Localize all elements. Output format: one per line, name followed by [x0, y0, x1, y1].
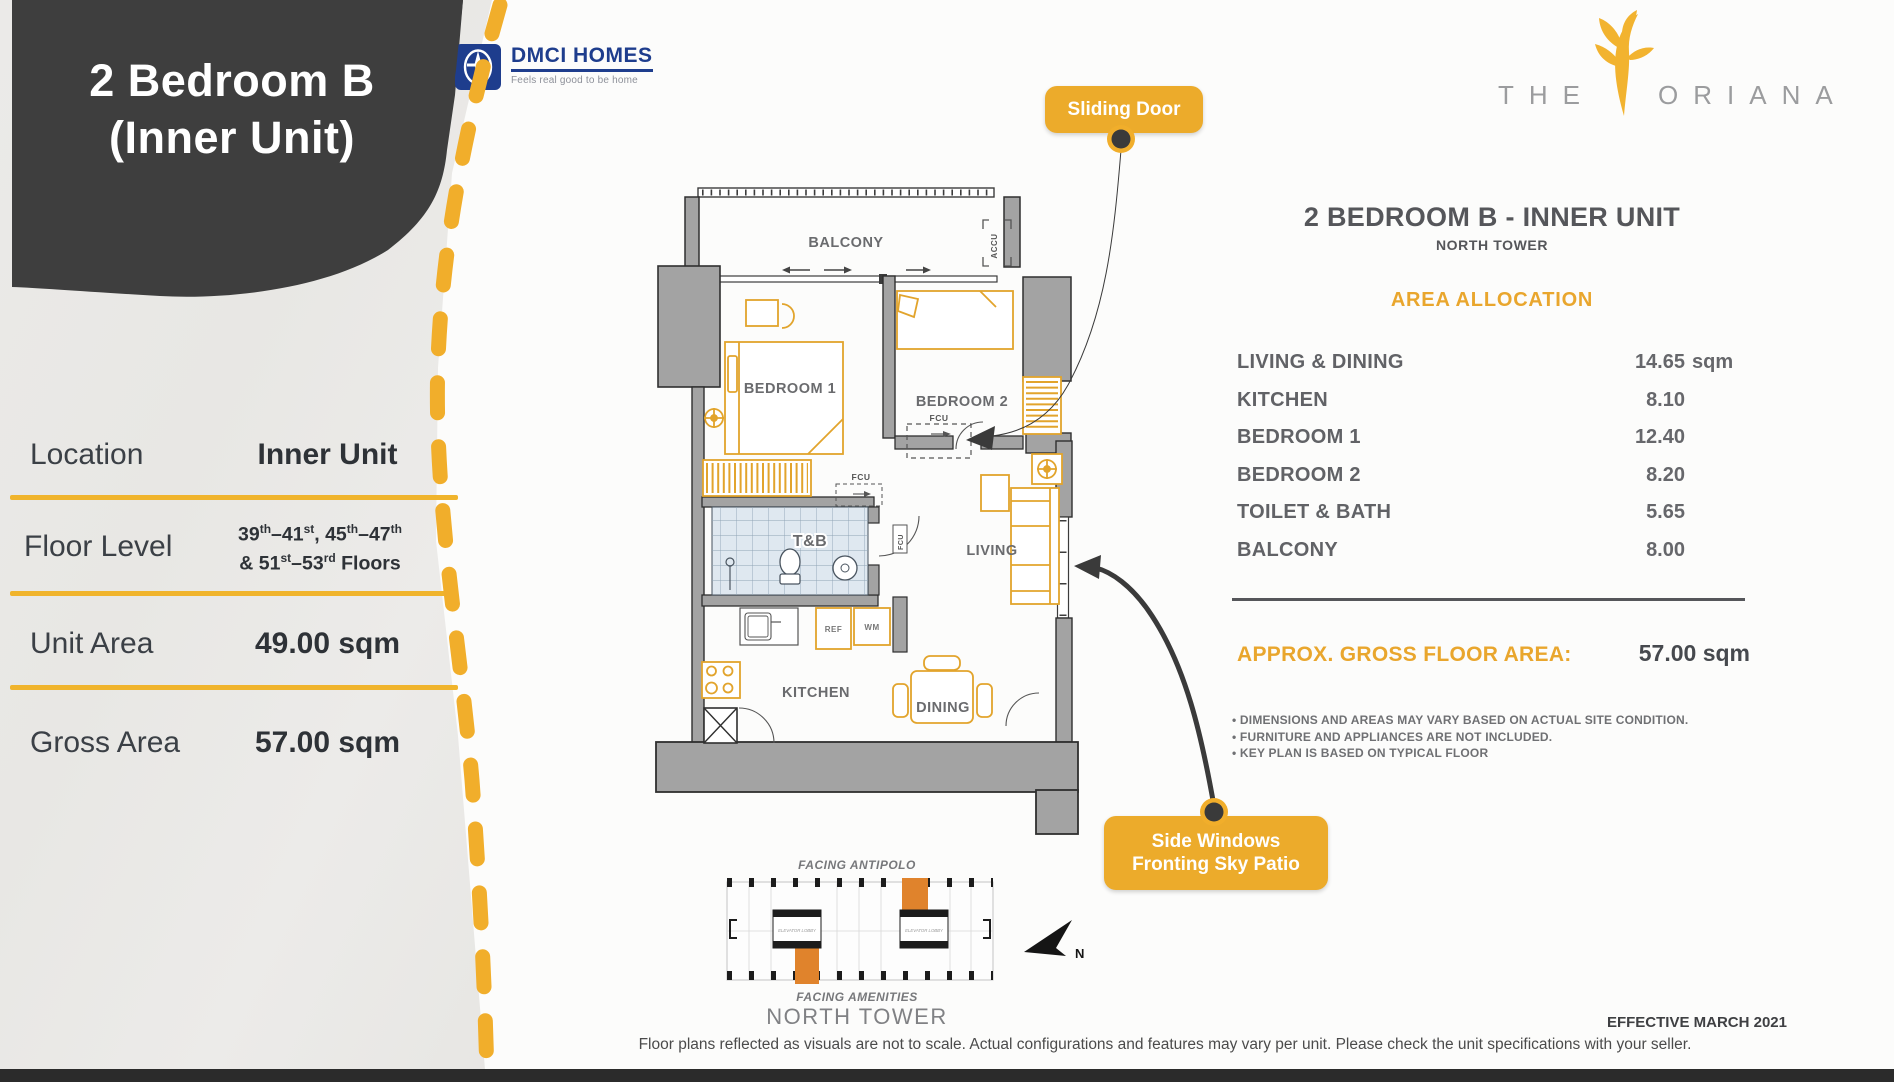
area-label: BEDROOM 2	[1237, 464, 1607, 487]
unit-title: 2 Bedroom B (Inner Unit)	[22, 52, 442, 166]
area-label: TOILET & BATH	[1237, 501, 1607, 524]
table-row: BEDROOM 1 12.40	[1237, 419, 1737, 457]
dmci-logo-name: DMCI HOMES	[511, 44, 653, 72]
area-value: 5.65	[1607, 501, 1685, 524]
fcu-label: FCU	[898, 534, 905, 550]
area-value: 8.00	[1607, 539, 1685, 562]
area-value: 8.10	[1607, 389, 1685, 412]
living-label: LIVING	[966, 543, 1017, 559]
area-value: 14.65	[1607, 351, 1685, 374]
table-row: BALCONY 8.00	[1237, 532, 1737, 570]
dining-label: DINING	[916, 700, 970, 716]
side-windows-arrow	[1074, 555, 1228, 826]
note-line: • DIMENSIONS AND AREAS MAY VARY BASED ON…	[1232, 712, 1792, 729]
fcu-label: FCU	[852, 472, 871, 482]
unit-area-label: Unit Area	[30, 627, 215, 661]
area-unit: sqm	[1685, 351, 1737, 374]
tnb-label: T&B	[793, 533, 827, 550]
area-label: BALCONY	[1237, 539, 1607, 562]
elevator-lobby-label: ELEVATOR LOBBY	[905, 928, 944, 933]
plan-title: 2 BEDROOM B - INNER UNIT	[1230, 202, 1754, 233]
balcony-label: BALCONY	[808, 235, 883, 251]
table-row: LIVING & DINING 14.65 sqm	[1237, 344, 1737, 382]
north-label: N	[1075, 946, 1084, 961]
brochure-page: 2 Bedroom B (Inner Unit) Location Inner …	[0, 0, 1894, 1082]
accu-label: ACCU	[990, 233, 999, 258]
area-allocation-heading: AREA ALLOCATION	[1230, 289, 1754, 312]
north-arrow-icon: N	[1022, 918, 1092, 964]
dmci-logo-tagline: Feels real good to be home	[511, 75, 653, 86]
side-windows-callout: Side Windows Fronting Sky Patio	[1104, 816, 1328, 890]
wm-label: WM	[864, 623, 879, 632]
keyplan-unit-highlight	[795, 948, 819, 984]
table-row: BEDROOM 2 8.20	[1237, 457, 1737, 495]
table-row: KITCHEN 8.10	[1237, 382, 1737, 420]
location-value: Inner Unit	[205, 438, 450, 472]
side-windows-callout-label: Side Windows Fronting Sky Patio	[1132, 830, 1300, 876]
keyplan-unit-highlight	[902, 878, 928, 913]
area-label: LIVING & DINING	[1237, 351, 1607, 374]
sliding-door-callout-label: Sliding Door	[1068, 98, 1181, 121]
area-label: KITCHEN	[1237, 389, 1607, 412]
divider	[10, 591, 458, 596]
gross-area-label: Gross Area	[30, 726, 215, 760]
bedroom1-label: BEDROOM 1	[744, 381, 836, 397]
divider	[1232, 598, 1745, 601]
unit-title-line2: (Inner Unit)	[22, 109, 442, 166]
floor-level-value-line2: & 51st–53rd Floors	[195, 544, 445, 579]
dmci-logo: DMCI HOMES Feels real good to be home	[455, 44, 653, 90]
footer-bar	[0, 1069, 1894, 1082]
sliding-door-callout: Sliding Door	[1045, 86, 1203, 133]
gross-floor-area-value: 57.00 sqm	[1639, 640, 1750, 667]
fcu-label: FCU	[930, 413, 949, 423]
gross-floor-area-row: APPROX. GROSS FLOOR AREA: 57.00 sqm	[1237, 640, 1750, 667]
plan-subtitle: NORTH TOWER	[1230, 237, 1754, 253]
ref-label: REF	[825, 625, 843, 634]
gross-area-value: 57.00 sqm	[205, 726, 450, 760]
oriana-logo-word-oriana: ORIANA	[1658, 80, 1848, 111]
divider	[10, 685, 458, 690]
elevator-lobby-label: ELEVATOR LOBBY	[778, 928, 817, 933]
oriana-leaf-icon	[1572, 8, 1662, 118]
effective-date: EFFECTIVE MARCH 2021	[1607, 1014, 1787, 1031]
unit-area-value: 49.00 sqm	[205, 627, 450, 661]
area-value: 8.20	[1607, 464, 1685, 487]
divider	[10, 495, 458, 500]
keyplan: ELEVATOR LOBBY ELEVATOR LOBBY	[710, 870, 1010, 994]
gross-floor-area-label: APPROX. GROSS FLOOR AREA:	[1237, 643, 1572, 667]
floor-level-label: Floor Level	[24, 530, 209, 564]
disclaimer-text: Floor plans reflected as visuals are not…	[540, 1036, 1790, 1054]
floor-plan: BALCONY BEDROOM 1 BEDROOM 2 T&B LIVING K…	[640, 160, 1090, 840]
location-label: Location	[30, 438, 215, 472]
unit-title-line1: 2 Bedroom B	[22, 52, 442, 109]
note-line: • FURNITURE AND APPLIANCES ARE NOT INCLU…	[1232, 729, 1792, 746]
kitchen-label: KITCHEN	[782, 685, 850, 701]
table-row: TOILET & BATH 5.65	[1237, 494, 1737, 532]
notes: • DIMENSIONS AND AREAS MAY VARY BASED ON…	[1232, 712, 1792, 762]
facing-antipolo-label: FACING ANTIPOLO	[707, 858, 1007, 872]
bedroom2-label: BEDROOM 2	[916, 394, 1008, 410]
side-windows-line1: Side Windows	[1152, 831, 1281, 852]
area-value: 12.40	[1607, 426, 1685, 449]
area-label: BEDROOM 1	[1237, 426, 1607, 449]
keyplan-tower-label: NORTH TOWER	[707, 1004, 1007, 1030]
oriana-logo: THE ORIANA	[1490, 8, 1890, 118]
facing-amenities-label: FACING AMENITIES	[707, 990, 1007, 1004]
dmci-logo-icon	[455, 44, 501, 90]
note-line: • KEY PLAN IS BASED ON TYPICAL FLOOR	[1232, 745, 1792, 762]
area-allocation-table: LIVING & DINING 14.65 sqm KITCHEN 8.10 B…	[1237, 344, 1737, 569]
side-windows-line2: Fronting Sky Patio	[1132, 854, 1300, 875]
